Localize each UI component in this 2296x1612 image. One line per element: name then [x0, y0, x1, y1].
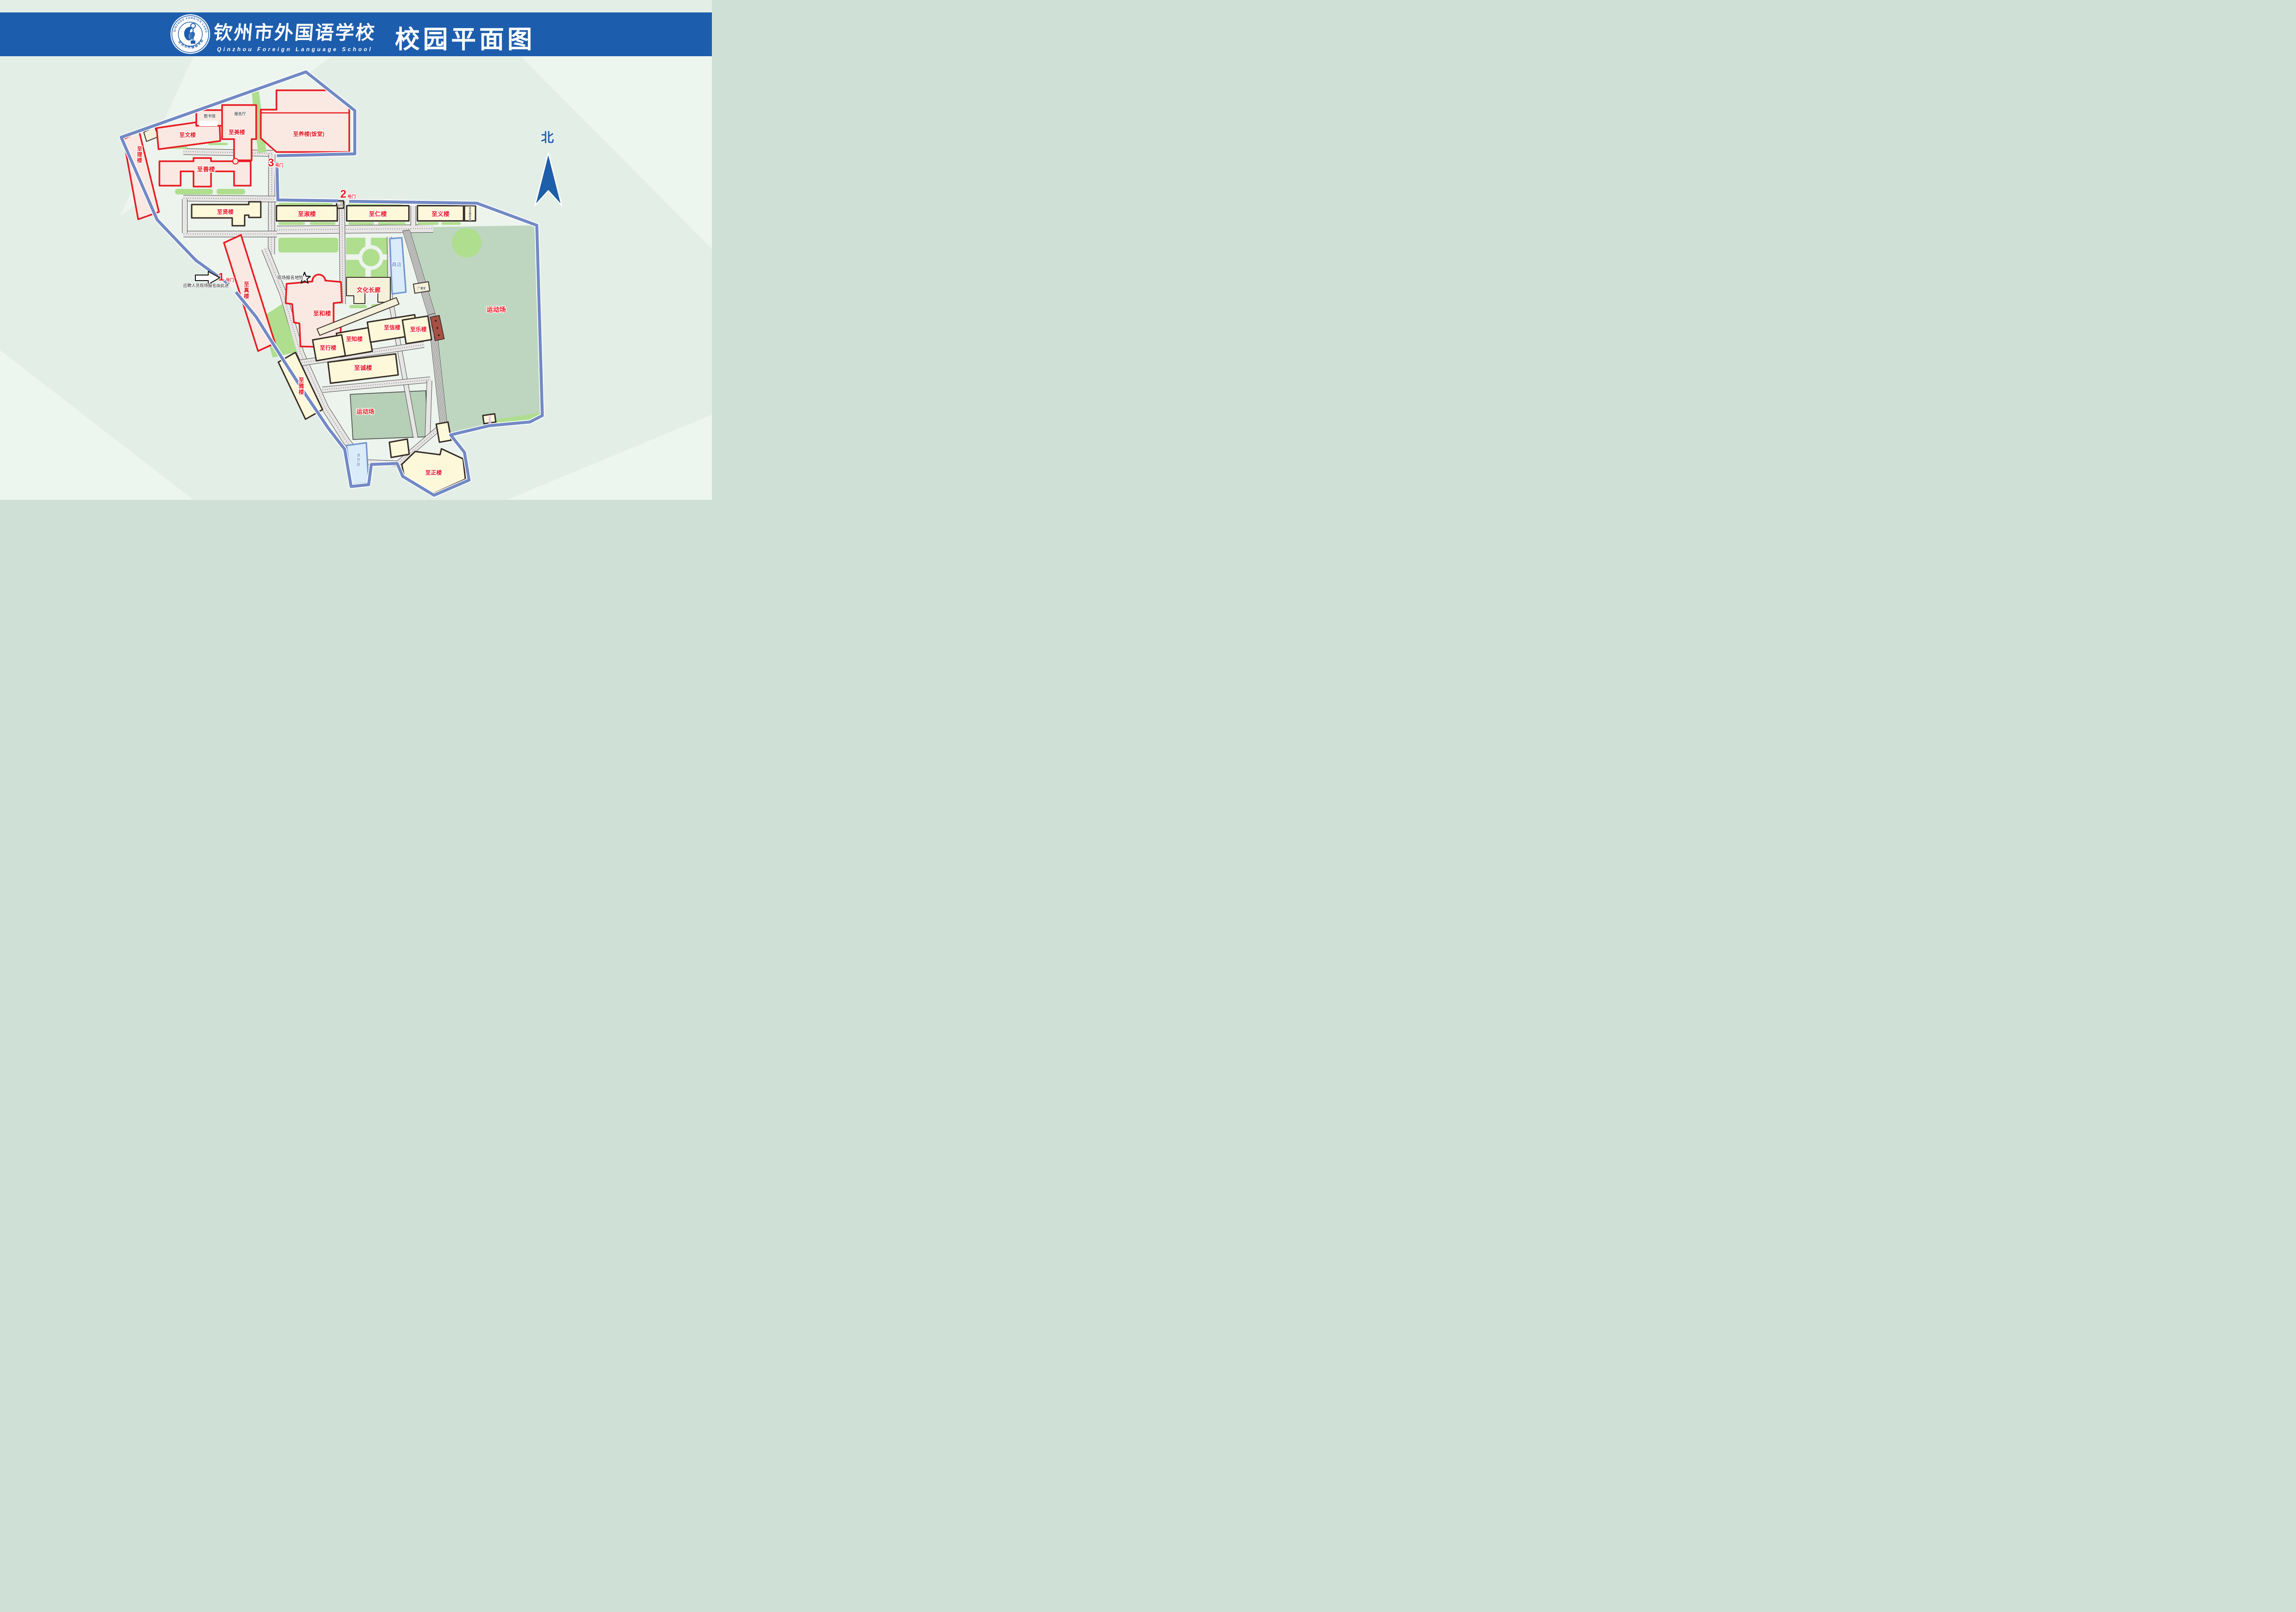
- school-logo: QINZHOU FOREIGN LANGUAGE SCHOOL 钦州市外国语学校…: [170, 14, 211, 54]
- label-field-small: 运动场: [356, 408, 374, 415]
- label-zhixing-lou: 至行楼: [320, 344, 336, 351]
- lawn-3: [278, 222, 305, 225]
- building-zhizheng-annex: [389, 439, 409, 457]
- page-title: 校园平面图: [383, 19, 547, 55]
- gate-3-number: 3: [268, 157, 274, 169]
- building-field-corner-annex: [436, 422, 452, 442]
- label-sports-equipment: 体育器材室: [469, 206, 471, 221]
- road-field-southwest: [428, 381, 429, 437]
- label-zhimei-lou: 至美楼: [229, 129, 245, 135]
- compass-label: 北: [541, 130, 554, 145]
- label-zhiwen-lou: 至文楼: [179, 131, 196, 138]
- school-name-en: Qinzhou Foreign Language School: [210, 46, 380, 53]
- building-field-corner-annex: [436, 422, 452, 442]
- campus-map: 至文楼图书馆报告厅至美楼至养楼(饭堂)至善楼至理楼至贤楼至淑楼至仁楼至义楼体育器…: [0, 0, 712, 500]
- label-zhixian-lou: 至贤楼: [217, 208, 234, 215]
- label-zhizheng-lou: 至正楼: [425, 469, 442, 476]
- lawn-5: [348, 222, 374, 225]
- label-field-main: 运动场: [487, 306, 506, 313]
- label-registration: 现场报名地点: [277, 275, 304, 281]
- lawn-8: [441, 222, 461, 225]
- label-guard-2: 值班室: [338, 204, 344, 207]
- label-zhiyang-lou: 至养楼(饭堂): [293, 130, 324, 137]
- label-zhicheng-lou: 至诚楼: [354, 364, 372, 371]
- label-zhishu-lou: 至淑楼: [298, 211, 316, 217]
- header-banner: QINZHOU FOREIGN LANGUAGE SCHOOL 钦州市外国语学校…: [0, 12, 712, 56]
- lawn-6: [378, 222, 405, 225]
- label-zhixin-lou: 至信楼: [384, 324, 400, 331]
- label-shop: 商店: [392, 261, 402, 268]
- label-zhihe-lou: 至和楼: [313, 310, 331, 317]
- school-name-zh: 钦州市外国语学校: [208, 17, 381, 45]
- gate-1-suffix: 号门: [226, 277, 234, 282]
- label-zhiya-lou: 至雅楼: [298, 377, 304, 395]
- gate-1-number: 1: [218, 271, 224, 283]
- lawn-9: [278, 238, 338, 252]
- label-broadcast-room: 广播室: [417, 287, 426, 290]
- lawn-16: [349, 305, 367, 308]
- label-entry-note: 应聘人员现场报名由此进: [183, 283, 229, 288]
- label-zhishan-lou: 至善楼: [197, 166, 215, 173]
- label-library: 图书馆: [204, 114, 216, 118]
- lawn-4: [310, 222, 335, 225]
- lawn-10: [175, 189, 213, 194]
- library-notch: [199, 121, 217, 126]
- lawn-11: [217, 189, 245, 194]
- label-zhili-lou: 至理楼: [137, 146, 142, 164]
- label-zhile-lou: 至乐楼: [410, 326, 427, 333]
- lawn-13: [208, 143, 228, 145]
- lawn-7: [417, 222, 439, 225]
- label-zhiren-lou: 至仁楼: [369, 211, 387, 217]
- label-culture-corridor: 文化长廊: [357, 287, 381, 293]
- label-zhizhen-lou: 至真楼: [244, 281, 249, 299]
- gate-2-suffix: 号门: [347, 194, 356, 199]
- garden-ring-inner: [362, 249, 380, 266]
- field-tree: [452, 228, 482, 258]
- gate-2-number: 2: [340, 188, 346, 200]
- school-name-block: 钦州市外国语学校 Qinzhou Foreign Language School: [210, 17, 380, 53]
- label-lecture-hall: 报告厅: [234, 111, 246, 116]
- gate-3-suffix: 号门: [275, 163, 283, 168]
- label-zhiyi-lou: 至义楼: [431, 211, 449, 217]
- road-gate3-south: [271, 154, 272, 254]
- label-toilet: 卫生间: [488, 415, 491, 424]
- zhimei-foot: [233, 158, 238, 164]
- label-zhizhi-lou: 至知楼: [346, 335, 363, 342]
- campus-map-poster: 至文楼图书馆报告厅至美楼至养楼(饭堂)至善楼至理楼至贤楼至淑楼至仁楼至义楼体育器…: [0, 0, 712, 500]
- label-laundry: 洗衣房: [356, 453, 360, 467]
- logo-year: 2000.4: [187, 45, 194, 47]
